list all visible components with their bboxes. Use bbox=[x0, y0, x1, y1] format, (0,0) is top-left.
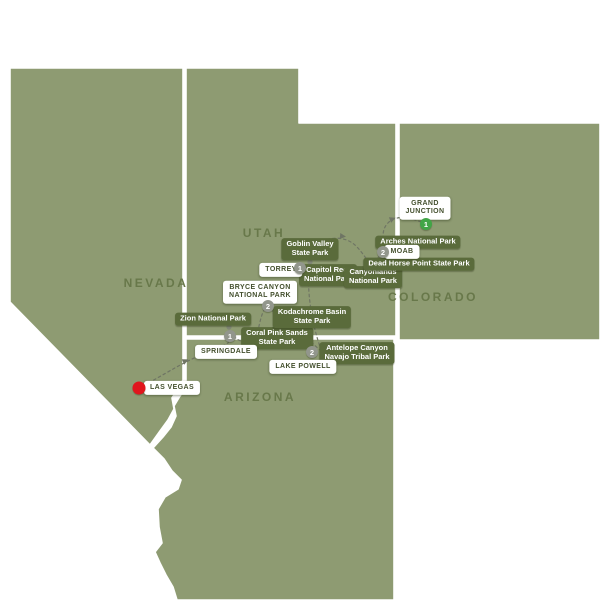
tour-map: NEVADA UTAH COLORADO ARIZONA Zion Nation… bbox=[0, 0, 600, 600]
state-label-colorado: COLORADO bbox=[388, 290, 478, 304]
colorado-region bbox=[399, 123, 600, 340]
zion-national-park-label: Zion National Park bbox=[175, 313, 251, 326]
state-label-nevada: NEVADA bbox=[124, 276, 189, 290]
lake-powell-label: LAKE POWELL bbox=[269, 360, 336, 374]
springdale-nights-marker: 1 bbox=[224, 330, 236, 342]
state-label-arizona: ARIZONA bbox=[224, 390, 296, 404]
bryce-canyon-label: BRYCE CANYON NATIONAL PARK bbox=[223, 281, 297, 304]
bryce-canyon-nights-marker: 2 bbox=[262, 300, 274, 312]
moab-label: MOAB bbox=[385, 245, 420, 259]
torrey-nights-marker: 1 bbox=[294, 262, 306, 274]
lake-powell-nights-marker: 2 bbox=[306, 346, 318, 358]
las-vegas-label: LAS VEGAS bbox=[144, 381, 200, 395]
grand-junction-nights-marker: 1 bbox=[420, 218, 432, 230]
map-base-svg bbox=[0, 0, 600, 600]
grand-junction-label: GRAND JUNCTION bbox=[400, 197, 451, 220]
las-vegas-start-marker bbox=[133, 382, 146, 395]
springdale-label: SPRINGDALE bbox=[195, 345, 257, 359]
moab-nights-marker: 2 bbox=[377, 246, 389, 258]
dead-horse-point-label: Dead Horse Point State Park bbox=[363, 258, 474, 271]
goblin-valley-label: Goblin Valley State Park bbox=[281, 238, 338, 260]
arizona-region bbox=[153, 339, 394, 600]
state-label-utah: UTAH bbox=[243, 226, 285, 240]
kodachrome-basin-label: Kodachrome Basin State Park bbox=[273, 306, 351, 328]
